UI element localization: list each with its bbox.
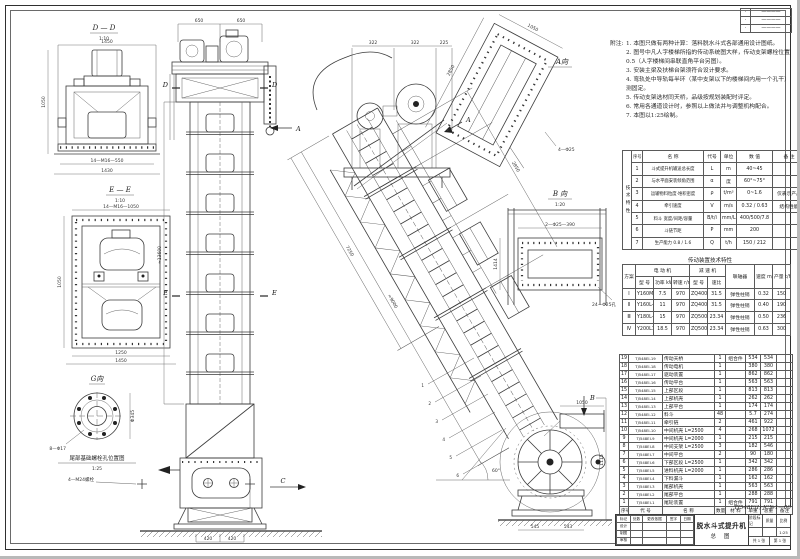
table-cell xyxy=(777,387,793,395)
table-cell xyxy=(726,403,746,411)
view-g-flange: G向 8—Φ17 Φ345 尾部基础螺栓孔位置图 1:25 4—M24螺栓 xyxy=(49,375,306,508)
table-cell: 215 xyxy=(746,435,761,443)
scale-label: 比例 xyxy=(777,515,790,527)
table-cell: 1 xyxy=(715,371,726,379)
dim-g-bolt: 8—Φ17 xyxy=(49,446,66,452)
table-cell xyxy=(681,530,694,537)
table-cell: L xyxy=(704,163,721,175)
table-cell: 12 xyxy=(620,411,629,419)
table-cell: 922 xyxy=(761,419,777,427)
table-cell: 签字 xyxy=(667,516,681,523)
cut-e-left: E xyxy=(162,289,168,297)
table-row: 10TJ548EⅠ-10中间机壳 L=250042681072 xyxy=(620,427,793,435)
table-cell: 5 xyxy=(632,212,643,224)
table-cell xyxy=(631,530,643,537)
col-header: 电 动 机 xyxy=(636,265,690,277)
table-cell: 190 xyxy=(773,300,791,312)
table-cell: 5 xyxy=(620,467,629,475)
table-cell: 0.32 / 0.63 xyxy=(737,200,773,212)
table-cell: 中间机壳 L=2000 xyxy=(663,435,715,443)
table-cell: 0.32 xyxy=(755,288,773,300)
table-cell: 生产能力 0.8 / 1.6 xyxy=(643,237,704,249)
table-cell: mm/L xyxy=(721,212,737,224)
view-ee-title: E — E xyxy=(108,186,131,194)
table-cell: 14 xyxy=(620,395,629,403)
table-cell: 288 xyxy=(761,491,777,499)
table-cell: 342 xyxy=(746,459,761,467)
list-item: 4. 弯轨处中导轨每半环（某中支架以下的楼梯间内用一个孔干）测固定。 xyxy=(626,76,790,94)
col-header: 备 注 xyxy=(773,151,800,163)
table-cell: 31.5 xyxy=(708,288,726,300)
table-cell: 4 xyxy=(632,200,643,212)
table-cell: 弹性柱销 xyxy=(726,300,755,312)
table-cell: 274 xyxy=(761,411,777,419)
table-cell: 日期 xyxy=(681,516,694,523)
table-row: 3TJ548EⅠ-3尾部机壳1563563 xyxy=(620,483,793,491)
table-cell xyxy=(773,212,800,224)
dim-dd-height: 1050 xyxy=(41,96,47,108)
table-cell xyxy=(726,459,746,467)
sheet-count: 共 1 张 xyxy=(749,537,770,545)
table-cell: 牵引链 xyxy=(663,419,715,427)
table-cell xyxy=(681,537,694,544)
table-cell: 2 xyxy=(715,419,726,427)
table-cell: ZQ500-Ⅲ-2F xyxy=(690,324,708,336)
table-cell xyxy=(667,530,681,537)
parameter-table: 技术特性 序号 名 称 代号 单位 数 值 备 注 1斗式提升机输送总长度Lm4… xyxy=(622,150,800,250)
view-section-dd: D — D 1:10 1450 1050 14—M16—550 1430 xyxy=(41,24,160,174)
arrow-b-label: B xyxy=(589,394,595,402)
table-row: 设计 xyxy=(617,523,694,530)
table-cell: P xyxy=(704,225,721,237)
table-cell xyxy=(726,475,746,483)
table-cell: Ⅱ xyxy=(623,300,636,312)
dim-bv-note: 24—Φ25孔 xyxy=(592,301,616,308)
table-cell xyxy=(777,435,793,443)
table-cell: 上部平台 xyxy=(663,403,715,411)
table-cell: 534 xyxy=(746,355,761,363)
list-item: 6. 常用各通道设计时，参照以上做法并与调整机构配合。 xyxy=(626,103,790,112)
table-cell xyxy=(726,467,746,475)
list-item: 5. 传动支架选材同天桥，品级按规划装配时评定。 xyxy=(626,94,790,103)
table-cell xyxy=(726,387,746,395)
table-cell: 6 xyxy=(620,459,629,467)
table-cell xyxy=(777,427,793,435)
table-cell: 862 xyxy=(761,371,777,379)
drive-table-title: 传动装置技术特性 xyxy=(655,256,765,264)
table-cell: 215 xyxy=(761,435,777,443)
table-cell: 传动电机 xyxy=(663,363,715,371)
table-cell: 11 xyxy=(654,300,672,312)
view-g-title: G向 xyxy=(91,375,105,383)
col-header: 名 称 xyxy=(643,151,704,163)
table-cell: ZQ500-Ⅲ-2F xyxy=(690,312,708,324)
table-row: 18TJ548EⅠ-18传动电机1380380 xyxy=(620,363,793,371)
table-cell: 料斗 xyxy=(663,411,715,419)
notes-block: 附注: 1. 本图只做有两种计算：落料脱水斗式各部通用设计图纸。2. 图号中凡人… xyxy=(610,40,790,121)
table-row: 5TJ548EⅠ-5进料机壳 L=20001286286 xyxy=(620,467,793,475)
table-cell xyxy=(667,537,681,544)
table-cell xyxy=(777,491,793,499)
table-cell xyxy=(726,427,746,435)
table-cell: 下部区段 L=2500 xyxy=(663,459,715,467)
dim-ee-top: 14—M16—1050 xyxy=(103,204,139,210)
table-row: 17TJ548EⅠ-17驱动装置1862862 xyxy=(620,371,793,379)
table-cell xyxy=(773,175,800,187)
dim-col-height: ≈13600 xyxy=(157,246,163,264)
table-cell: 17 xyxy=(620,371,629,379)
cut-d-right: D xyxy=(271,81,278,89)
dim-av-bolt: 4—Φ25 xyxy=(558,147,575,153)
table-cell: 与水平面安装倾角范围 xyxy=(643,175,704,187)
table-cell: · xyxy=(741,9,751,17)
anchor-layout-scale: 1:25 xyxy=(92,466,102,472)
col-header: 型 号 xyxy=(690,276,708,288)
table-row: ·———— xyxy=(741,17,792,25)
table-cell: TJ548EⅠ-9 xyxy=(629,435,663,443)
table-cell: Y180L-6 xyxy=(636,312,654,324)
table-row: 14TJ548EⅠ-14上部机壳1262262 xyxy=(620,395,793,403)
table-cell: 1 xyxy=(715,379,726,387)
table-cell: 传动天桥 xyxy=(663,355,715,363)
list-item: 7. 本图以1:25绘制。 xyxy=(626,112,790,121)
table-cell xyxy=(726,483,746,491)
table-cell: t/m³ xyxy=(721,188,737,200)
table-cell: 13 xyxy=(620,403,629,411)
table-cell: 9 xyxy=(620,435,629,443)
table-cell: 31.5 xyxy=(708,300,726,312)
table-cell: 11 xyxy=(620,419,629,427)
table-row: 2与水平面安装倾角范围α度60°~75° xyxy=(623,175,800,187)
table-cell: 斗链节距 xyxy=(643,225,704,237)
table-row: ·———— xyxy=(741,9,792,17)
col-header: 序号 xyxy=(632,151,643,163)
table-cell: 0.50 xyxy=(755,312,773,324)
dim-head-t1: 322 xyxy=(369,40,378,46)
revision-block: ·————·————·———— xyxy=(740,8,792,33)
col-header: 数 值 xyxy=(737,151,773,163)
table-cell: 1 xyxy=(715,467,726,475)
table-cell: ρ xyxy=(704,188,721,200)
dim-tail-b2: 543 xyxy=(564,524,573,530)
table-cell xyxy=(726,411,746,419)
parameter-table-side-label: 技术特性 xyxy=(623,151,632,250)
table-row: ·———— xyxy=(741,25,792,33)
table-cell: 中间支架 L=2500 xyxy=(663,443,715,451)
table-cell: 2 xyxy=(632,175,643,187)
table-cell: mm xyxy=(721,225,737,237)
table-cell xyxy=(777,483,793,491)
table-cell: 174 xyxy=(761,403,777,411)
table-cell: 48 xyxy=(715,411,726,419)
table-row: 8TJ548EⅠ-8中间支架 L=25003182546 xyxy=(620,443,793,451)
table-cell xyxy=(726,435,746,443)
table-row: ⅡY160L-611970ZQ400-Ⅲ-2F31.5弹性柱销0.40190 xyxy=(623,300,791,312)
table-cell: 上部机壳 xyxy=(663,395,715,403)
callout-4: 4 xyxy=(442,437,445,442)
table-cell: 2 xyxy=(715,451,726,459)
col-header: 速度 m/s xyxy=(755,265,773,289)
dim-av-width: 1050 xyxy=(526,23,539,34)
table-cell xyxy=(643,523,667,530)
table-cell: 236 xyxy=(773,312,791,324)
table-cell: · xyxy=(741,17,751,25)
table-cell: 60°~75° xyxy=(737,175,773,187)
table-row: ⅣY200L1-618.5970ZQ500-Ⅲ-2F23.34弹性柱销0.633… xyxy=(623,324,791,336)
table-cell: 1 xyxy=(715,475,726,483)
table-cell: 150 xyxy=(773,288,791,300)
title-block-signatures: 标记处数更改依据签字日期设计制图审核 xyxy=(616,515,694,545)
drawing-subtitle: 总 图 xyxy=(711,532,733,540)
table-cell: 4 xyxy=(715,427,726,435)
bom-table: 19TJ548EⅠ-19传动天桥1组合件53453418TJ548EⅠ-18传动… xyxy=(619,354,793,515)
dim-angle: 60° xyxy=(492,468,500,474)
table-cell: 驱动装置 xyxy=(663,371,715,379)
dim-av-length: 2850 xyxy=(446,64,457,77)
table-cell: Q xyxy=(704,237,721,249)
view-dd-title: D — D xyxy=(92,24,116,32)
table-cell: 弹性柱销 xyxy=(726,312,755,324)
table-cell: 1 xyxy=(715,395,726,403)
table-cell: TJ548EⅠ-12 xyxy=(629,411,663,419)
table-cell: 300 xyxy=(773,324,791,336)
table-cell: 6 xyxy=(632,225,643,237)
table-cell: TJ548EⅠ-7 xyxy=(629,451,663,459)
table-cell: 0.40 xyxy=(755,300,773,312)
table-row: 12TJ548EⅠ-12料斗485.7274 xyxy=(620,411,793,419)
table-row: 5料斗 宽度/间距/容量B/t/imm/L400/500/7.8 xyxy=(623,212,800,224)
table-cell: Y200L1-6 xyxy=(636,324,654,336)
callout-leaders: 1 2 3 4 5 6 xyxy=(421,358,509,478)
table-cell: 处数 xyxy=(631,516,643,523)
table-cell: ZQ400-Ⅲ-2F xyxy=(690,300,708,312)
table-cell: 组合件 xyxy=(726,355,746,363)
table-cell: 3 xyxy=(715,443,726,451)
table-cell: 1 xyxy=(715,491,726,499)
parameter-table-header: 技术特性 序号 名 称 代号 单位 数 值 备 注 xyxy=(623,151,800,163)
table-cell xyxy=(643,537,667,544)
table-cell: 1 xyxy=(715,403,726,411)
table-cell: 380 xyxy=(761,363,777,371)
sheet-number: 第 1 张 xyxy=(770,537,790,545)
table-cell: 380 xyxy=(746,363,761,371)
table-cell: 813 xyxy=(761,387,777,395)
dim-dd-width: 1450 xyxy=(101,39,113,45)
view-a-title: A向 xyxy=(555,58,569,66)
table-cell xyxy=(726,443,746,451)
col-header: 速比 xyxy=(708,276,726,288)
walkway-posts xyxy=(393,129,492,290)
table-cell: V xyxy=(704,200,721,212)
dim-head-t3: 225 xyxy=(440,40,449,46)
table-cell: TJ548EⅠ-2 xyxy=(629,491,663,499)
table-cell xyxy=(777,475,793,483)
table-cell xyxy=(726,371,746,379)
cut-d-left: D xyxy=(162,81,169,89)
dim-dd-bolts: 14—M16—550 xyxy=(91,158,124,164)
arrow-a-incline: A xyxy=(465,116,471,124)
table-cell: 563 xyxy=(746,379,761,387)
col-header: 产量 t/h xyxy=(773,265,791,289)
table-cell xyxy=(773,225,800,237)
table-cell: 斗式提升机输送总长度 xyxy=(643,163,704,175)
table-cell xyxy=(726,395,746,403)
col-header: 代号 xyxy=(704,151,721,163)
callout-6: 6 xyxy=(456,473,459,478)
truss-bracing xyxy=(330,160,482,404)
table-cell: 尾部平台 xyxy=(663,491,715,499)
arrow-a-front: A xyxy=(295,125,301,133)
title-block-meta: 阶段标记 质量 比例 1:25 共 1 张 第 1 张 xyxy=(749,515,790,545)
table-cell: TJ548EⅠ-19 xyxy=(629,355,663,363)
table-cell: 546 xyxy=(761,443,777,451)
table-cell: 23.34 xyxy=(708,312,726,324)
drive-table: 方案 电 动 机 减 速 机 联轴器 速度 m/s 产量 t/h 型 号 功率 … xyxy=(622,264,791,336)
table-cell: TJ548EⅠ-5 xyxy=(629,467,663,475)
drive-table-group-header: 方案 电 动 机 减 速 机 联轴器 速度 m/s 产量 t/h xyxy=(623,265,791,277)
table-cell: 286 xyxy=(761,467,777,475)
table-cell: 审核 xyxy=(617,537,631,544)
dim-tail-b1: 545 xyxy=(531,524,540,530)
table-cell xyxy=(777,395,793,403)
table-cell: 461 xyxy=(746,419,761,427)
table-cell: m/s xyxy=(721,200,737,212)
table-cell: 1 xyxy=(715,459,726,467)
table-cell: 970 xyxy=(672,312,690,324)
view-incline-tail: 545 543 1115 1050 B 60° xyxy=(436,394,612,530)
table-cell: TJ548EⅠ-14 xyxy=(629,395,663,403)
arrow-c-label: C xyxy=(281,477,286,485)
mass-label: 质量 xyxy=(763,515,777,527)
table-row: ⅠY160M-67.5970ZQ400-Ⅲ-2F31.5弹性柱销0.32150 xyxy=(623,288,791,300)
col-header: 单位 xyxy=(721,151,737,163)
table-cell: 制图 xyxy=(617,530,631,537)
table-cell: 970 xyxy=(672,300,690,312)
table-cell: 813 xyxy=(746,387,761,395)
table-row: 1斗式提升机输送总长度Lm40~45 xyxy=(623,163,800,175)
table-cell xyxy=(777,451,793,459)
table-row: 4TJ548EⅠ-4下料漏斗1162162 xyxy=(620,475,793,483)
table-cell: 563 xyxy=(761,379,777,387)
table-cell xyxy=(773,237,800,249)
table-row: 15TJ548EⅠ-15上部区段1813813 xyxy=(620,387,793,395)
dim-col-b2: 420 xyxy=(228,536,237,542)
bucket-rungs xyxy=(352,127,541,430)
table-cell: TJ548EⅠ-11 xyxy=(629,419,663,427)
table-cell: 0~1.6 xyxy=(737,188,773,200)
title-block-name: 脱水斗式提升机 总 图 xyxy=(694,515,749,545)
col-header: 方案 xyxy=(623,265,636,289)
table-cell: 862 xyxy=(746,371,761,379)
table-cell: t/h xyxy=(721,237,737,249)
table-row: 7生产能力 0.8 / 1.6Qt/h150 / 212 xyxy=(623,237,800,249)
table-row: 19TJ548EⅠ-19传动天桥1组合件534534 xyxy=(620,355,793,363)
table-cell: 7 xyxy=(620,451,629,459)
table-cell: ZQ400-Ⅲ-2F xyxy=(690,288,708,300)
table-cell: ———— xyxy=(751,9,792,17)
table-cell: 牵引速度 xyxy=(643,200,704,212)
table-row: 标记处数更改依据签字日期 xyxy=(617,516,694,523)
table-cell: 342 xyxy=(761,459,777,467)
dim-col-t1: 650 xyxy=(195,18,204,24)
col-header: 联轴器 xyxy=(726,265,755,289)
table-cell: 1 xyxy=(715,435,726,443)
table-cell: 1 xyxy=(632,163,643,175)
table-cell: 3 xyxy=(620,483,629,491)
notes-list: 1. 本图只做有两种计算：落料脱水斗式各部通用设计图纸。2. 图号中凡人字楼梯所… xyxy=(626,40,790,121)
table-cell: 18 xyxy=(620,363,629,371)
table-cell xyxy=(777,443,793,451)
table-cell: 设计 xyxy=(617,523,631,530)
table-row: 16TJ548EⅠ-16传动平台1563563 xyxy=(620,379,793,387)
table-cell xyxy=(667,523,681,530)
table-cell: 中间平台 xyxy=(663,451,715,459)
table-cell xyxy=(726,419,746,427)
table-row: 2TJ548EⅠ-2尾部平台1288288 xyxy=(620,491,793,499)
table-cell: 仅表示产品 xyxy=(773,188,800,200)
dim-head-t2: 322 xyxy=(411,40,420,46)
table-cell: TJ548EⅠ-15 xyxy=(629,387,663,395)
view-b-title: B 向 xyxy=(552,190,568,198)
table-cell: 534 xyxy=(761,355,777,363)
table-cell xyxy=(726,451,746,459)
table-cell xyxy=(777,459,793,467)
table-cell: 7 xyxy=(632,237,643,249)
list-item: 1. 本图只做有两种计算：落料脱水斗式各部通用设计图纸。 xyxy=(626,40,790,49)
dim-bv-top: 2—Φ25—390 xyxy=(545,222,575,228)
table-cell: 288 xyxy=(746,491,761,499)
table-cell xyxy=(773,163,800,175)
table-cell: 结构性能 xyxy=(773,200,800,212)
drawing-sheet: D — D 1:10 1450 1050 14—M16—550 1430 xyxy=(0,0,800,559)
table-cell: 2 xyxy=(620,491,629,499)
cut-e-right: E xyxy=(271,289,277,297)
table-cell: 7.5 xyxy=(654,288,672,300)
dim-incl-l2: 7250 xyxy=(344,245,355,258)
table-cell: 度 xyxy=(721,175,737,187)
table-cell xyxy=(681,523,694,530)
callout-2: 2 xyxy=(428,401,431,406)
table-cell: TJ548EⅠ-10 xyxy=(629,427,663,435)
table-cell: Ⅳ xyxy=(623,324,636,336)
table-cell: TJ548EⅠ-13 xyxy=(629,403,663,411)
dim-incl-l3: 2850 xyxy=(510,160,521,173)
table-cell: ———— xyxy=(751,25,792,33)
table-cell: 进料机壳 L=2000 xyxy=(663,467,715,475)
table-cell xyxy=(777,467,793,475)
table-cell: TJ548EⅠ-4 xyxy=(629,475,663,483)
col-header: 型 号 xyxy=(636,276,654,288)
table-cell: 4 xyxy=(620,475,629,483)
table-cell xyxy=(726,379,746,387)
table-cell: 262 xyxy=(746,395,761,403)
stage-value xyxy=(749,528,763,536)
table-cell: 150 / 212 xyxy=(737,237,773,249)
table-cell: ———— xyxy=(751,17,792,25)
table-cell: 970 xyxy=(672,324,690,336)
table-cell: TJ548EⅠ-3 xyxy=(629,483,663,491)
table-cell: 0.63 xyxy=(755,324,773,336)
table-cell: 下料漏斗 xyxy=(663,475,715,483)
table-cell: 162 xyxy=(746,475,761,483)
table-cell: 15 xyxy=(620,387,629,395)
table-cell xyxy=(777,355,793,363)
table-row: 7TJ548EⅠ-7中间平台290180 xyxy=(620,451,793,459)
drawing-number-handwritten: TJ548E(Ⅰ)·JC№1—00 xyxy=(695,505,791,511)
scale-value: 1:25 xyxy=(777,528,790,536)
table-cell xyxy=(643,530,667,537)
table-cell xyxy=(777,411,793,419)
